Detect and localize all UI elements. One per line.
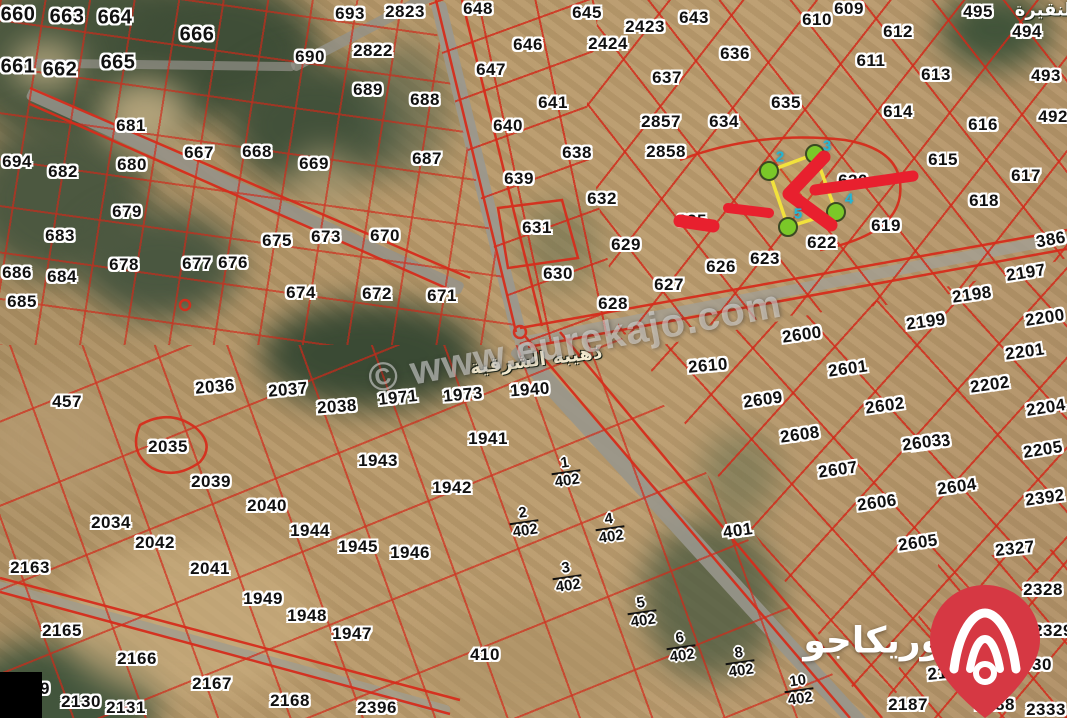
vertex-marker-label-5: 5: [794, 206, 802, 223]
vertex-marker-label-2: 2: [776, 149, 784, 166]
brand-pin-icon: [930, 585, 1040, 718]
redaction-box: [0, 672, 42, 718]
vertex-marker-label-4: 4: [845, 191, 853, 208]
vertex-marker-label-3: 3: [823, 138, 831, 155]
cadastral-map-canvas[interactable]: 6606636646666906616626656932823282268968…: [0, 0, 1067, 718]
